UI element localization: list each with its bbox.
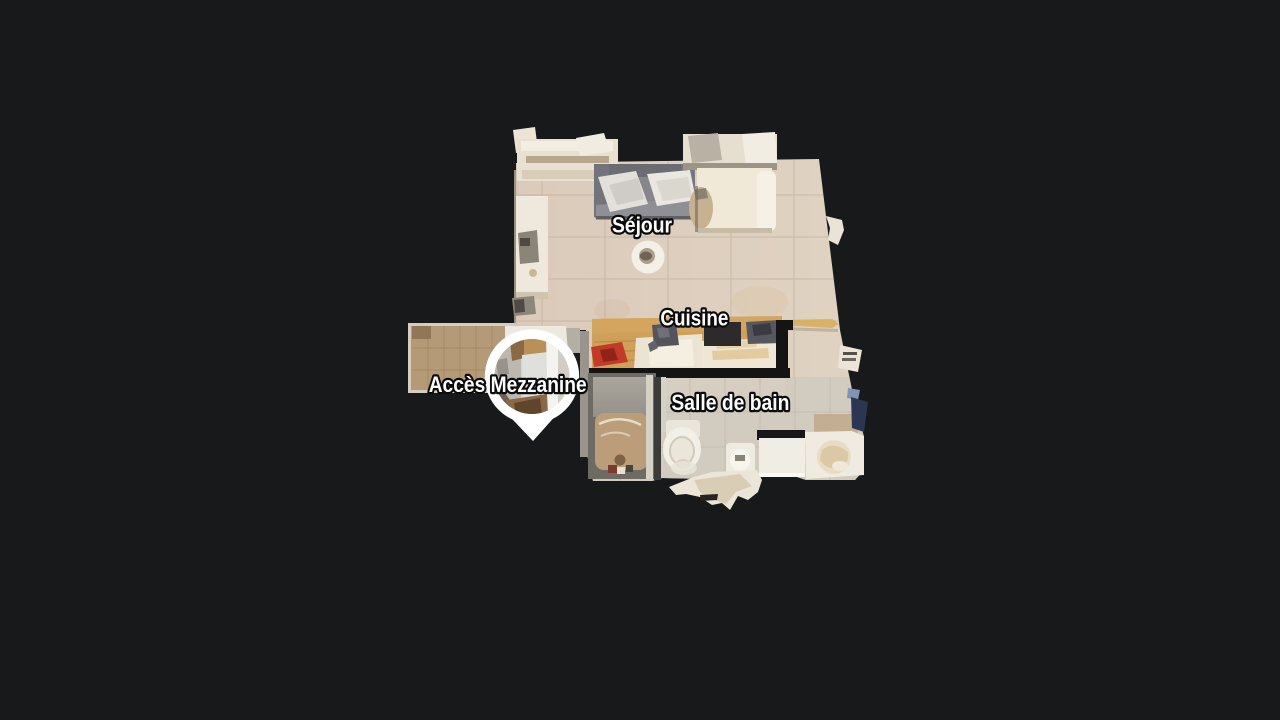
svg-text:Accès Mezzanine: Accès Mezzanine <box>429 372 587 397</box>
svg-text:Salle de bain: Salle de bain <box>671 390 789 415</box>
svg-text:Cuisine: Cuisine <box>660 306 728 331</box>
svg-text:Séjour: Séjour <box>612 212 672 237</box>
